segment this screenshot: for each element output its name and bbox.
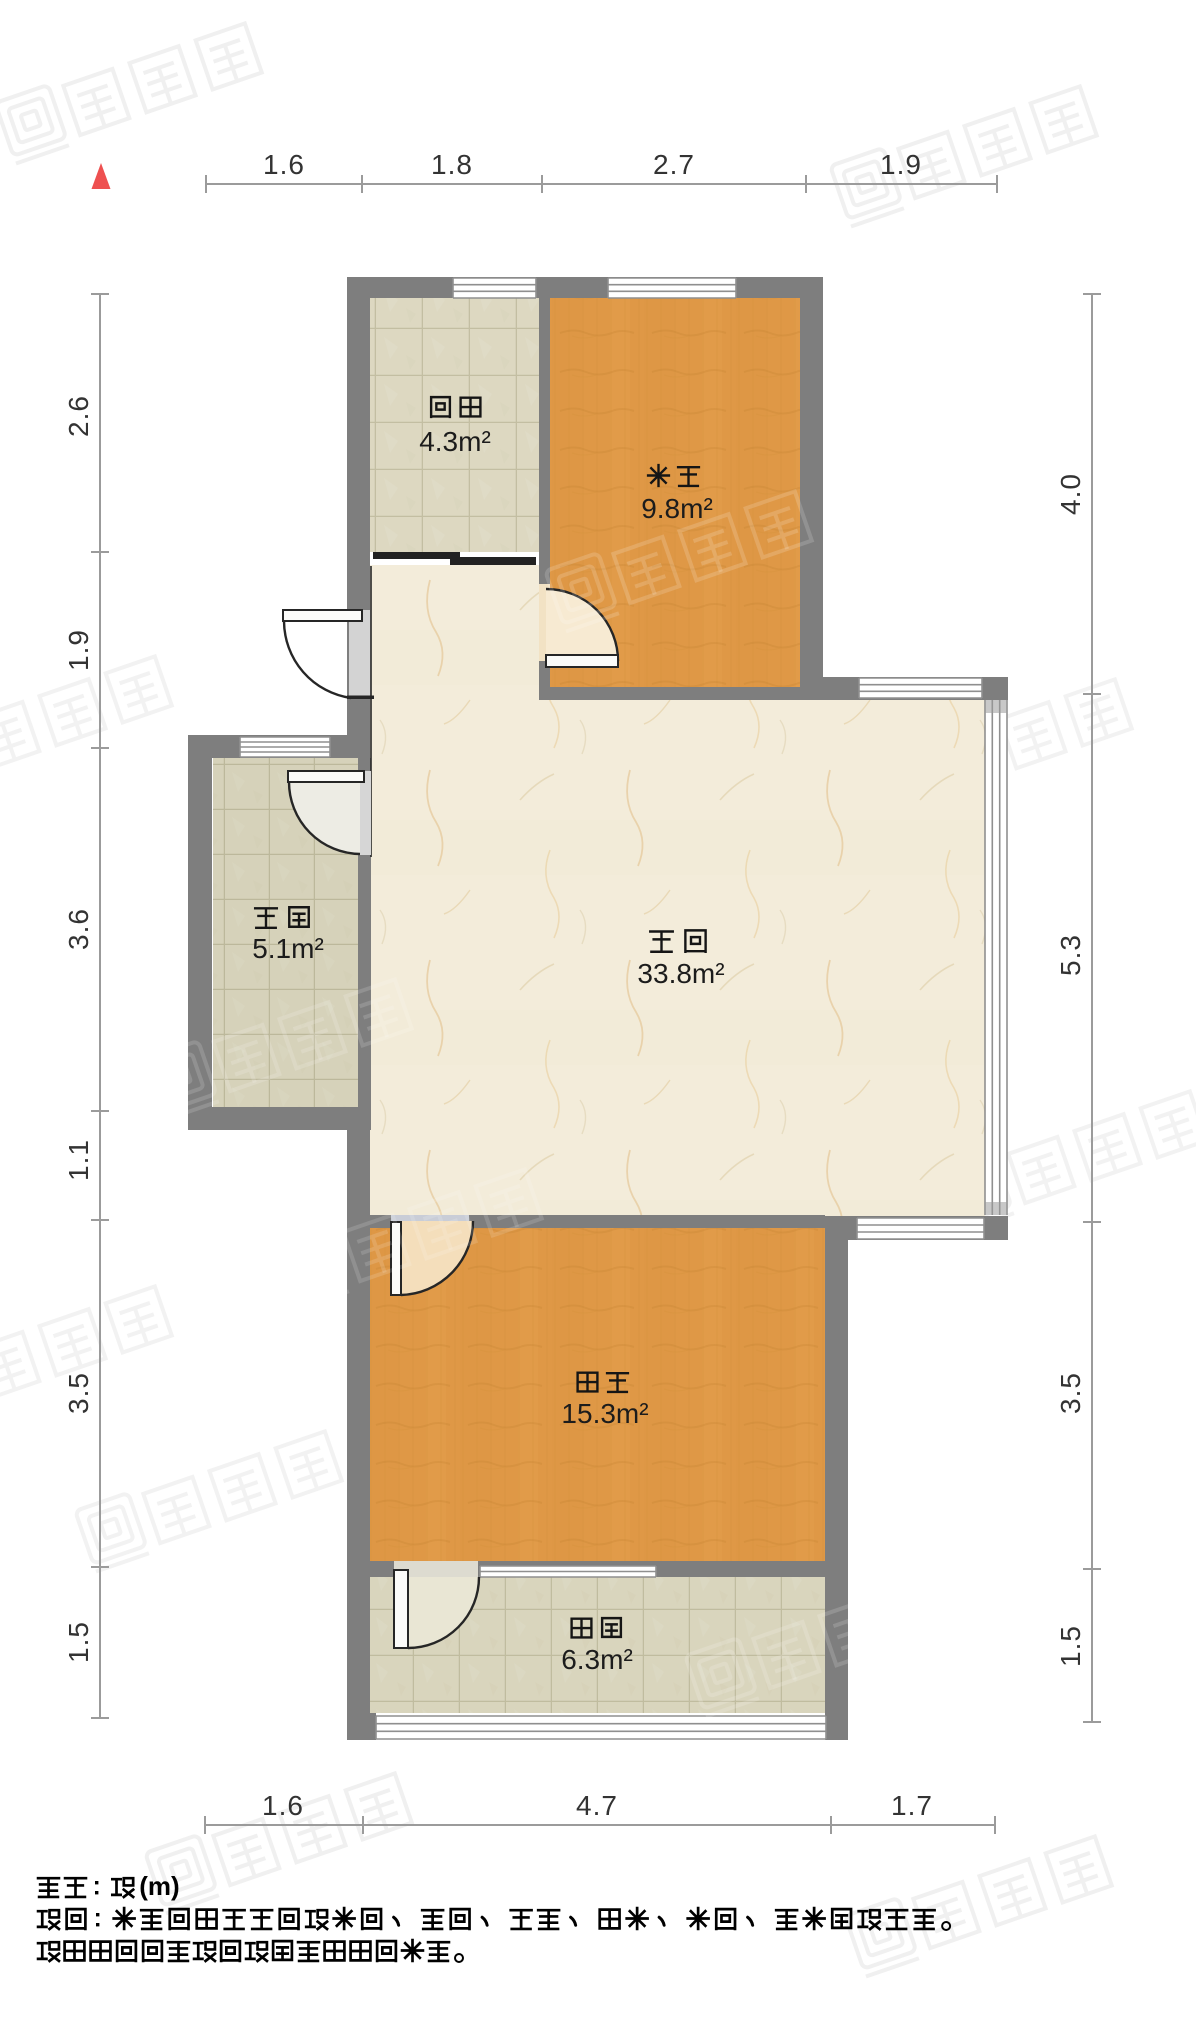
svg-text:1.8: 1.8 <box>431 149 473 180</box>
svg-text:(m): (m) <box>139 1871 179 1901</box>
svg-text:1.9: 1.9 <box>880 149 922 180</box>
svg-text:1.6: 1.6 <box>263 149 305 180</box>
svg-text:1.6: 1.6 <box>262 1790 304 1821</box>
svg-text:1.5: 1.5 <box>63 1621 94 1663</box>
svg-text:1.9: 1.9 <box>63 629 94 671</box>
svg-text:2.7: 2.7 <box>653 149 695 180</box>
svg-text:15.3m²: 15.3m² <box>561 1398 648 1429</box>
svg-text:33.8m²: 33.8m² <box>637 958 724 989</box>
svg-text:3.5: 3.5 <box>63 1372 94 1414</box>
svg-text:4.3m²: 4.3m² <box>419 426 491 457</box>
svg-text:4.7: 4.7 <box>576 1790 618 1821</box>
svg-text:1.7: 1.7 <box>891 1790 933 1821</box>
svg-text:5.1m²: 5.1m² <box>252 933 324 964</box>
svg-text:9.8m²: 9.8m² <box>641 493 713 524</box>
svg-text:5.3: 5.3 <box>1055 934 1086 976</box>
svg-text:2.6: 2.6 <box>63 395 94 437</box>
svg-text:3.6: 3.6 <box>63 908 94 950</box>
svg-text:6.3m²: 6.3m² <box>561 1644 633 1675</box>
svg-text:1.1: 1.1 <box>63 1139 94 1181</box>
svg-text:4.0: 4.0 <box>1055 473 1086 515</box>
svg-text:3.5: 3.5 <box>1055 1372 1086 1414</box>
svg-text:1.5: 1.5 <box>1055 1625 1086 1667</box>
